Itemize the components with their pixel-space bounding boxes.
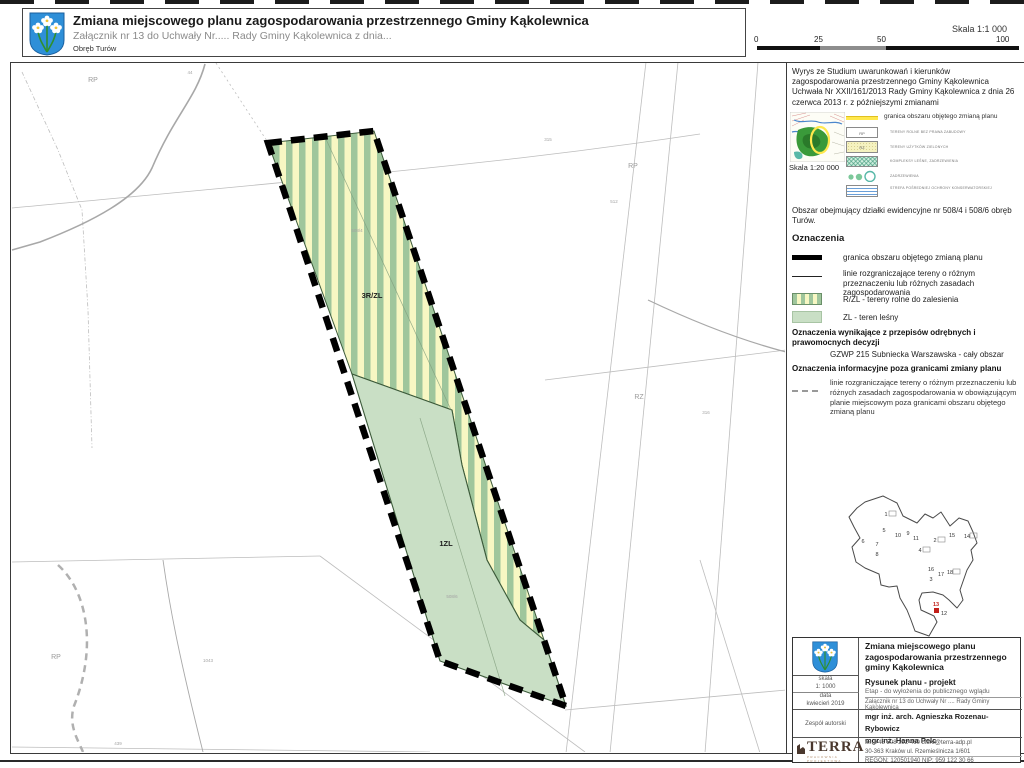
sheet-cut-dashes bbox=[0, 0, 1024, 4]
contact-address: 30-363 Kraków ul. Rzemieślnicza 1/601 bbox=[865, 748, 1022, 757]
stage-label: Etap - do wyłożenia do publicznego wgląd… bbox=[865, 688, 1022, 698]
studium-source-note: Wyrys ze Studium uwarunkowań i kierunków… bbox=[792, 67, 1019, 108]
studium-scale-label: Skala 1:20 000 bbox=[789, 163, 839, 172]
legend-zl-label: ZL - teren leśny bbox=[843, 313, 1019, 323]
svg-text:7: 7 bbox=[875, 542, 878, 548]
info-item: linie rozgraniczające tereny o różnym pr… bbox=[830, 378, 1018, 417]
svg-text:10: 10 bbox=[895, 533, 901, 539]
commune-crest-icon bbox=[29, 12, 65, 56]
dirt-road-dashed bbox=[58, 565, 87, 752]
studium-label-zone: STREFA POŚREDNIEJ OCHRONY KONSERWATORSKI… bbox=[890, 186, 1020, 190]
titleblock-title: Zmiana miejscowego planu zagospodarowani… bbox=[865, 641, 1017, 673]
svg-text:3: 3 bbox=[929, 577, 932, 583]
svg-text:18: 18 bbox=[947, 570, 953, 576]
scale-tick-0: 0 bbox=[754, 35, 758, 44]
svg-text:508/4: 508/4 bbox=[351, 228, 363, 233]
svg-text:3R/ZL: 3R/ZL bbox=[362, 291, 383, 300]
info-heading: Oznaczenia informacyjne poza granicami z… bbox=[792, 364, 1019, 374]
studium-label-trees: ZADRZEWIENIA bbox=[890, 174, 1020, 178]
scale-bar-segment bbox=[757, 46, 820, 50]
scale-tick-100: 100 bbox=[996, 35, 1009, 44]
svg-text:1043: 1043 bbox=[203, 658, 214, 663]
svg-text:512: 512 bbox=[610, 199, 618, 204]
svg-text:5: 5 bbox=[882, 528, 885, 534]
studium-swatch-rz: RZ bbox=[846, 141, 878, 153]
terra-logo-text: TERRA bbox=[807, 739, 865, 756]
area-description: Obszar obejmujący działki ewidencyjne nr… bbox=[792, 206, 1019, 226]
svg-text:439: 439 bbox=[114, 741, 122, 746]
svg-text:11: 11 bbox=[913, 536, 919, 542]
studium-swatch-trees bbox=[846, 170, 880, 182]
locator-map: 156781091124151416317181213 bbox=[845, 488, 1020, 638]
title-block: Zmiana miejscowego planu zagospodarowani… bbox=[792, 637, 1021, 763]
legend-dividing-line-swatch bbox=[792, 276, 822, 277]
svg-text:RP: RP bbox=[88, 77, 98, 84]
scale-bar-segment bbox=[886, 46, 1019, 50]
studium-thumbnail-map bbox=[790, 112, 845, 162]
scale-field-label: skala bbox=[818, 676, 832, 682]
date-field-value: kwiecień 2019 bbox=[806, 701, 844, 707]
svg-text:44: 44 bbox=[187, 70, 193, 75]
studium-swatch-forest bbox=[846, 156, 878, 167]
studium-swatch-zone bbox=[846, 185, 878, 197]
legend-rzl-swatch bbox=[792, 293, 822, 305]
studium-granica-label: granica obszaru objętego zmianą planu bbox=[884, 113, 1020, 120]
legend-rzl-label: R/ZL - tereny rolne do zalesienia bbox=[843, 295, 1019, 305]
legend-heading: Oznaczenia bbox=[792, 233, 844, 244]
legend-boundary-swatch bbox=[792, 255, 822, 260]
page-subtitle: Załącznik nr 13 do Uchwały Nr..... Rady … bbox=[73, 30, 392, 42]
info-dashed-swatch bbox=[792, 390, 818, 392]
legend-dividing-line-label: linie rozgraniczające tereny o różnym pr… bbox=[843, 269, 1019, 298]
studium-granica-swatch bbox=[846, 116, 878, 120]
svg-text:6: 6 bbox=[861, 539, 864, 545]
svg-text:RP: RP bbox=[51, 654, 61, 661]
studium-label-forest: KOMPLEKSY LEŚNE, ZADRZEWIENIA bbox=[890, 159, 1020, 163]
studium-label-rz: TERENY UŻYTKÓW ZIELONYCH bbox=[890, 145, 1020, 149]
svg-text:8: 8 bbox=[875, 552, 878, 558]
svg-text:316: 316 bbox=[702, 410, 710, 415]
svg-text:12: 12 bbox=[941, 611, 947, 617]
svg-text:2: 2 bbox=[933, 538, 936, 544]
regulations-heading: Oznaczenia wynikające z przepisów odrębn… bbox=[792, 328, 1019, 348]
svg-text:315: 315 bbox=[544, 137, 552, 142]
svg-text:508/6: 508/6 bbox=[446, 594, 458, 599]
svg-text:1ZL: 1ZL bbox=[439, 539, 453, 548]
authors-field-label: Zespół autorski bbox=[793, 710, 859, 738]
map-canvas: 3R/ZL1ZL RPRPRZRP 1043439508/4508/651231… bbox=[11, 63, 785, 752]
page-title: Zmiana miejscowego planu zagospodarowani… bbox=[73, 13, 589, 28]
terra-logo-caption: PRACOWNIA PROJEKTOWA bbox=[807, 755, 858, 763]
plan-sheet: Zmiana miejscowego planu zagospodarowani… bbox=[0, 0, 1024, 768]
author-1: mgr inż. arch. Agnieszka Rozenau-Rybowic… bbox=[865, 711, 1022, 735]
scale-field-value: 1: 1000 bbox=[815, 684, 835, 690]
titleblock-crest-icon bbox=[812, 641, 838, 673]
svg-text:16: 16 bbox=[928, 567, 934, 573]
studium-label-rp: TERENY ROLNE BEZ PRAWA ZABUDOWY bbox=[890, 130, 1020, 134]
svg-text:17: 17 bbox=[938, 572, 944, 578]
studium-swatch-rp: RP bbox=[846, 127, 878, 138]
svg-text:1: 1 bbox=[884, 512, 887, 518]
legend-zl-swatch bbox=[792, 311, 822, 323]
svg-text:RZ: RZ bbox=[634, 394, 644, 401]
scale-bar-segment bbox=[820, 46, 886, 50]
map-sidebar-divider bbox=[786, 62, 787, 753]
svg-text:15: 15 bbox=[949, 533, 955, 539]
contact-phone: tel. +48 508 292 460 biuro@terra-adp.pl bbox=[865, 739, 1022, 748]
area-label: Obręb Turów bbox=[73, 44, 116, 53]
scale-tick-25: 25 bbox=[814, 35, 823, 44]
legend-boundary-label: granica obszaru objętego zmianą planu bbox=[843, 253, 1019, 263]
scale-ratio-label: Skala 1:1 000 bbox=[952, 24, 1007, 34]
date-field-label: data bbox=[820, 693, 832, 699]
svg-text:9: 9 bbox=[906, 531, 909, 537]
svg-text:4: 4 bbox=[918, 548, 921, 554]
commune-outline bbox=[849, 496, 977, 636]
svg-text:14: 14 bbox=[964, 534, 970, 540]
contact-regon: REGON: 120501940 NIP: 959 122 30 66 bbox=[865, 756, 1022, 766]
svg-text:13: 13 bbox=[933, 602, 939, 608]
regulations-item: GZWP 215 Subniecka Warszawska - cały obs… bbox=[830, 350, 1018, 359]
drawing-title: Rysunek planu - projekt bbox=[865, 678, 1022, 687]
svg-text:RP: RP bbox=[628, 163, 638, 170]
terra-logo-icon bbox=[796, 743, 806, 755]
scale-tick-50: 50 bbox=[877, 35, 886, 44]
